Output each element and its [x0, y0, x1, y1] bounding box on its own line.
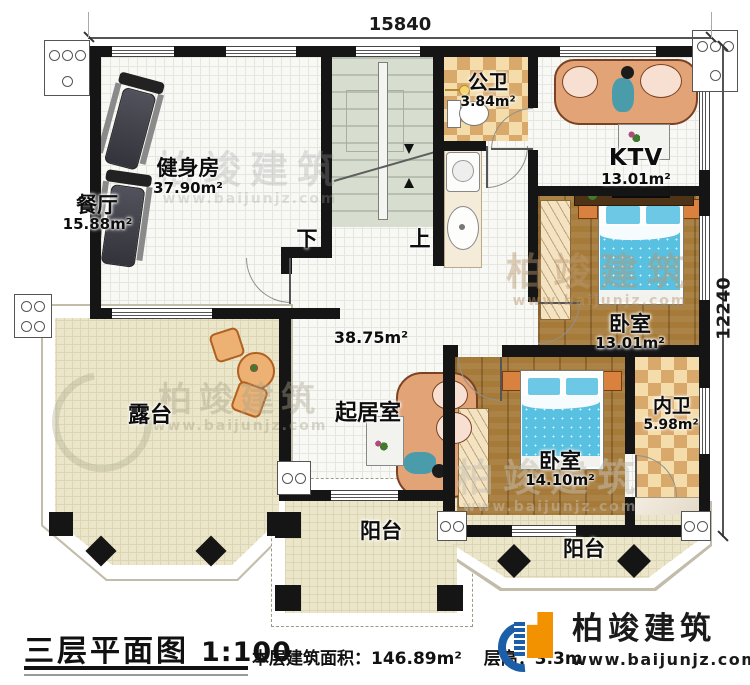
stair-label-up: 上	[406, 228, 434, 250]
room-label-bedroom2: 卧室	[522, 450, 598, 472]
room-label-ktv: KTV	[596, 146, 676, 170]
door-leaf	[538, 302, 580, 304]
window	[112, 46, 174, 57]
room-label-balcony-center: 阳台	[345, 520, 417, 542]
stair-label-down: 下	[293, 228, 321, 250]
door-leaf	[491, 148, 533, 150]
logo-brand-url: www.baijunjz.com	[572, 652, 750, 668]
door-leaf	[486, 146, 488, 188]
wall	[90, 46, 101, 319]
dimension-witness-line	[88, 12, 89, 38]
pillow	[604, 204, 642, 226]
dimension-line-top	[88, 37, 712, 39]
corner-pillar	[44, 40, 90, 96]
logo-brand-name: 柏竣建筑	[572, 614, 750, 645]
room-label-dining: 餐厅	[57, 194, 137, 216]
pillow	[644, 204, 682, 226]
window	[356, 46, 420, 57]
wall	[321, 46, 332, 252]
balcony-post	[49, 512, 73, 536]
floor-plan-canvas: 柏竣建筑 www.baijunjz.com 柏竣建筑 www.baijunjz.…	[0, 0, 750, 685]
nightstand	[502, 371, 522, 391]
title-underline	[24, 666, 248, 670]
ktv-sofa-cushion	[562, 66, 598, 98]
room-area-bedroom1: 13.01m²	[592, 336, 668, 352]
person-head	[621, 66, 634, 79]
room-area-dining: 15.88m²	[50, 217, 145, 233]
door-leaf	[500, 357, 502, 401]
stair-landing-outline	[346, 90, 404, 152]
area-value: 146.89m²	[371, 649, 462, 669]
wall	[528, 196, 538, 302]
window	[699, 216, 710, 300]
room-label-gym: 健身房	[133, 157, 243, 179]
nightstand	[602, 371, 622, 391]
window	[226, 46, 296, 57]
corner-pillar	[437, 511, 467, 541]
room-label-terrace: 露台	[113, 404, 187, 427]
window	[512, 525, 576, 537]
room-area-bedroom2: 14.10m²	[519, 473, 601, 489]
wall	[433, 141, 486, 151]
room-area-gym: 37.90m²	[138, 181, 238, 197]
title-underline-thin	[24, 674, 248, 676]
balcony-post	[275, 512, 301, 538]
wall	[443, 345, 455, 537]
wall	[528, 46, 538, 108]
corner-pillar	[681, 511, 711, 541]
corner-pillar	[277, 461, 311, 495]
dimension-right-value: 12240	[714, 271, 735, 347]
person-body	[612, 78, 634, 112]
window	[699, 92, 710, 170]
ktv-sofa-cushion	[640, 64, 682, 98]
page-title: 三层平面图	[24, 634, 189, 669]
window	[331, 490, 398, 501]
room-label-balcony-right: 阳台	[548, 538, 620, 560]
bed-sheet	[600, 290, 680, 302]
washbasin-drain	[459, 224, 465, 230]
wall	[433, 46, 444, 266]
logo-text-block: 柏竣建筑 www.baijunjz.com	[572, 614, 750, 668]
stair-rail	[378, 62, 388, 220]
logo-tower-blue	[514, 620, 525, 656]
center-balcony-floor	[285, 490, 457, 613]
room-area-public-bath: 3.84m²	[457, 95, 519, 110]
room-label-public-bath: 公卫	[455, 72, 521, 93]
door-leaf	[289, 258, 291, 304]
logo-mark	[498, 608, 566, 678]
window	[560, 46, 656, 57]
pillow	[564, 376, 600, 397]
room-area-ktv: 13.01m²	[596, 172, 676, 188]
logo-tower-orange	[527, 612, 553, 658]
pillow	[526, 376, 562, 397]
window	[112, 308, 212, 319]
corner-pillar	[14, 294, 52, 338]
room-area-living: 38.75m²	[328, 330, 414, 347]
room-label-bedroom1: 卧室	[592, 313, 668, 335]
door-leaf	[635, 455, 637, 497]
stair-arrow-down-icon	[404, 144, 414, 154]
flower-decor	[628, 131, 640, 143]
wall	[625, 357, 635, 454]
flower-decor	[374, 438, 388, 452]
room-label-ensuite-bath: 内卫	[643, 397, 701, 417]
room-area-ensuite-bath: 5.98m²	[639, 418, 703, 433]
dimension-witness-line	[711, 12, 712, 38]
balcony-post	[275, 585, 301, 611]
stair-arrow-up-icon	[404, 178, 414, 188]
room-label-living: 起居室	[320, 402, 416, 425]
balcony-post	[437, 585, 463, 611]
dimension-top-value: 15840	[340, 14, 460, 35]
area-label: 本层建筑面积：	[252, 649, 371, 669]
washing-machine-drum	[452, 160, 474, 182]
flower-decor	[249, 363, 259, 373]
